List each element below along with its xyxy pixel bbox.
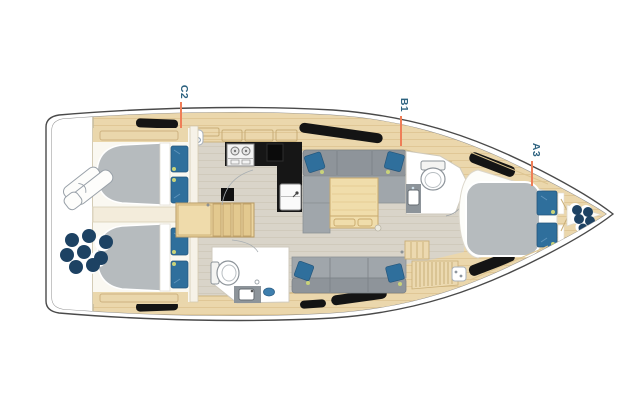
- pillow: [385, 263, 404, 282]
- fwd-mattress: [466, 182, 540, 256]
- saloon-sofa-starboard: [292, 257, 406, 293]
- label-a3: A3: [530, 143, 542, 157]
- locker-icon: [452, 267, 466, 281]
- nav-slat-seat: [412, 261, 466, 289]
- aft-head-toilet: [211, 261, 239, 285]
- head-accessory: [264, 288, 275, 296]
- aft-cabin-starboard: [93, 222, 190, 304]
- galley-sink: [280, 184, 301, 210]
- interior: [44, 100, 618, 330]
- saloon-table: [330, 178, 381, 231]
- floor-dot: [207, 204, 210, 207]
- aft-head-vanity: [234, 286, 261, 303]
- counter-inset: [267, 144, 283, 161]
- stove: [227, 144, 254, 166]
- forward-head-toilet: [421, 161, 445, 190]
- aft-cabin-port: [93, 128, 190, 207]
- forward-head-vanity: [406, 184, 421, 213]
- companionway-steps: [176, 203, 254, 237]
- floor-dot: [401, 251, 404, 254]
- bulkhead-wall: [190, 126, 198, 207]
- label-b1: B1: [398, 98, 410, 112]
- yacht-floorplan: C2 B1 A3: [0, 0, 638, 401]
- forward-cabin-vanity: [405, 241, 429, 259]
- label-c2: C2: [178, 85, 190, 99]
- aft-corridor: [93, 207, 190, 222]
- floorplan-svg: C2 B1 A3: [0, 0, 638, 401]
